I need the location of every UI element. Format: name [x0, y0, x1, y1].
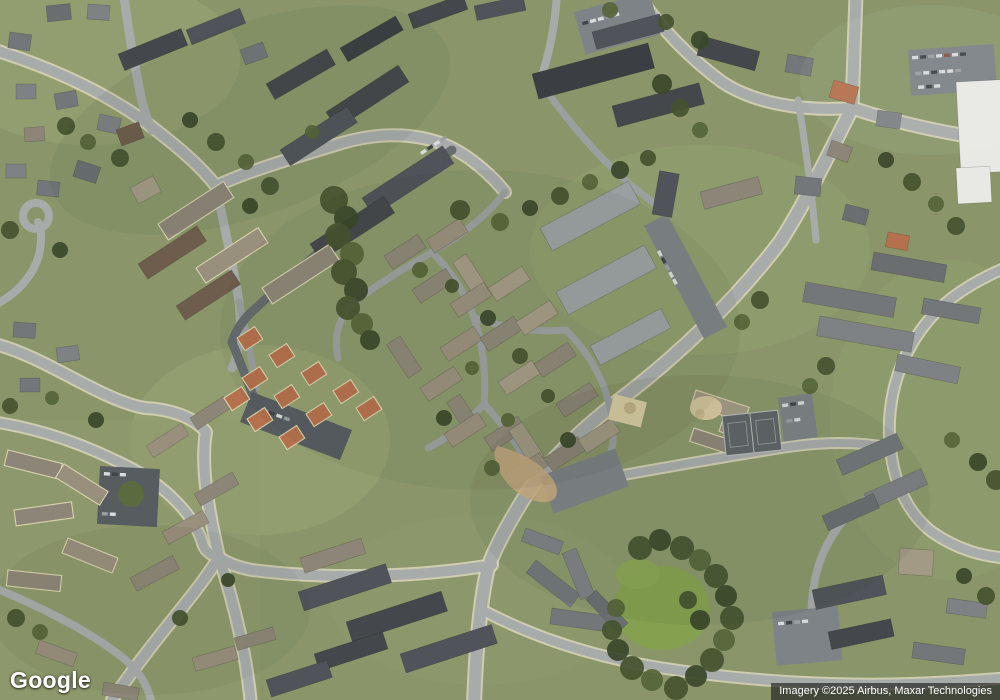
attribution-bar: Imagery ©2025 Airbus, Maxar Technologies — [771, 683, 1000, 700]
attribution-text: Imagery ©2025 Airbus, Maxar Technologies — [779, 685, 992, 698]
map-viewport[interactable]: Google Imagery ©2025 Airbus, Maxar Techn… — [0, 0, 1000, 700]
google-logo[interactable]: Google — [10, 669, 91, 692]
satellite-imagery[interactable] — [0, 0, 1000, 700]
